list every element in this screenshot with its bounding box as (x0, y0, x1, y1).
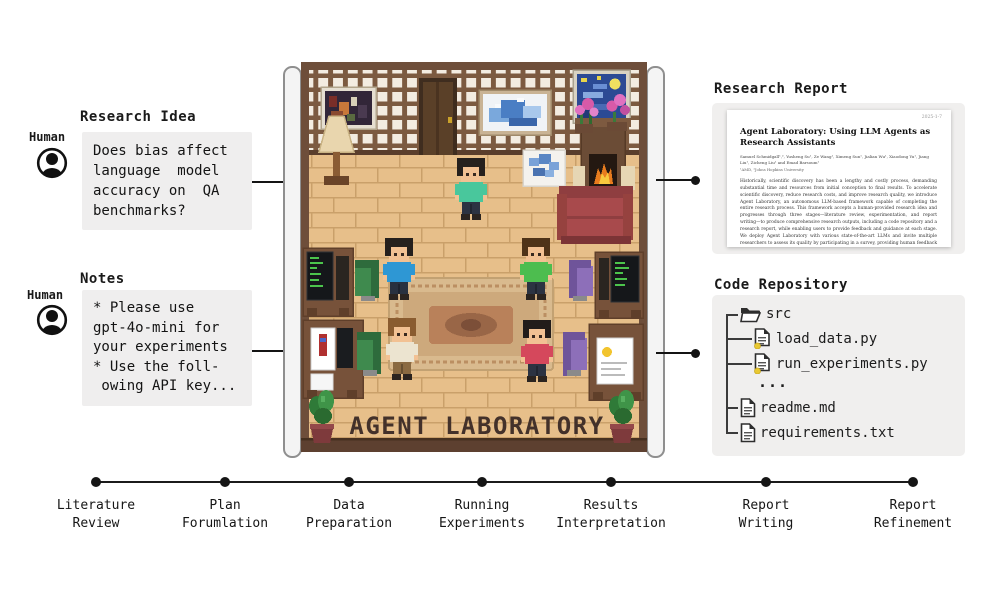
agent-laboratory-figure: Research Idea Human Does bias affect lan… (0, 0, 1000, 600)
research-idea-box: Does bias affect language model accuracy… (82, 132, 252, 230)
tree-item-requirements: requirements.txt (760, 425, 895, 441)
chair-green-2 (357, 332, 381, 376)
timeline-dot-running-experiments (477, 477, 487, 487)
door (419, 78, 457, 155)
tree-branch (726, 407, 738, 409)
timeline-stage-data-preparation: Data Preparation (306, 497, 392, 533)
desk-bottom-right (589, 324, 643, 400)
timeline-line (96, 481, 914, 483)
wall-painting-wave (479, 90, 551, 135)
timeline-stage-report-refinement: Report Refinement (874, 497, 952, 533)
desk-bottom-left (303, 320, 363, 398)
human-label-1: Human (29, 130, 65, 144)
connector-lab-to-report (656, 179, 694, 181)
paper-title: Agent Laboratory: Using LLM Agents as Re… (740, 127, 937, 149)
timeline-dot-report-refinement (908, 477, 918, 487)
timeline-stage-results-interpretation: Results Interpretation (556, 497, 666, 533)
python-file-icon (754, 353, 771, 374)
report-panel: 2025-1-7 Agent Laboratory: Using LLM Age… (712, 103, 965, 254)
human-icon (35, 303, 69, 337)
lab-room-scene: AGENT LABORATORY (301, 62, 647, 452)
repo-panel: src load_data.py run_experiments.py ... (712, 295, 965, 456)
research-report-heading: Research Report (714, 81, 848, 97)
code-repository-heading: Code Repository (714, 277, 848, 293)
python-file-icon (754, 328, 771, 349)
paper-abstract: Historically, scientific discovery has b… (740, 179, 937, 247)
file-icon (740, 398, 756, 418)
timeline-stage-report-writing: Report Writing (739, 497, 794, 533)
tree-branch (726, 314, 738, 316)
timeline-dot-data-preparation (344, 477, 354, 487)
tree-trunk (726, 315, 728, 434)
scene-right-rail (646, 66, 665, 458)
timeline-stage-literature-review: Literature Review (57, 497, 135, 533)
tree-branch (726, 363, 752, 365)
paper-page: 2025-1-7 Agent Laboratory: Using LLM Age… (727, 110, 951, 247)
paper-authors: Samuel Schmidgall¹,², Yusheng Su¹, Ze Wa… (740, 154, 937, 166)
timeline-stage-running-experiments: Running Experiments (439, 497, 525, 533)
connector-lab-to-repo (656, 352, 694, 354)
blue-map-tile (523, 150, 565, 186)
research-idea-heading: Research Idea (80, 109, 196, 125)
desk-top-left (303, 248, 353, 316)
tree-item-ellipsis: ... (758, 373, 788, 391)
tree-item-run-experiments: run_experiments.py (776, 356, 928, 372)
connector-report-dot (691, 176, 700, 185)
desk-top-right (595, 252, 643, 318)
timeline-stage-plan-formulation: Plan Forumlation (182, 497, 268, 533)
timeline-dot-report-writing (761, 477, 771, 487)
paper-affiliation: ¹AMD, ²Johns Hopkins University (740, 167, 937, 172)
file-icon (740, 423, 756, 443)
tree-item-readme: readme.md (760, 400, 836, 416)
human-label-2: Human (27, 288, 63, 302)
folder-icon (740, 306, 761, 323)
chair-purple-1 (569, 260, 593, 301)
paper-page-header: 2025-1-7 (727, 115, 942, 120)
timeline-dot-literature-review (91, 477, 101, 487)
tree-branch (726, 432, 738, 434)
timeline-dot-results-interpretation (606, 477, 616, 487)
tree-item-src: src (766, 306, 791, 322)
red-couch (557, 186, 633, 244)
notes-heading: Notes (80, 271, 125, 287)
lab-sign-text: AGENT LABORATORY (349, 412, 604, 440)
chair-purple-2 (563, 332, 587, 376)
notes-box: * Please use gpt-4o-mini for your experi… (82, 290, 252, 406)
chair-green-1 (355, 260, 379, 301)
connector-repo-dot (691, 349, 700, 358)
tree-item-load-data: load_data.py (776, 331, 877, 347)
human-icon (35, 146, 69, 180)
scene-left-rail (283, 66, 302, 458)
tree-branch (726, 338, 752, 340)
timeline-dot-plan-formulation (220, 477, 230, 487)
